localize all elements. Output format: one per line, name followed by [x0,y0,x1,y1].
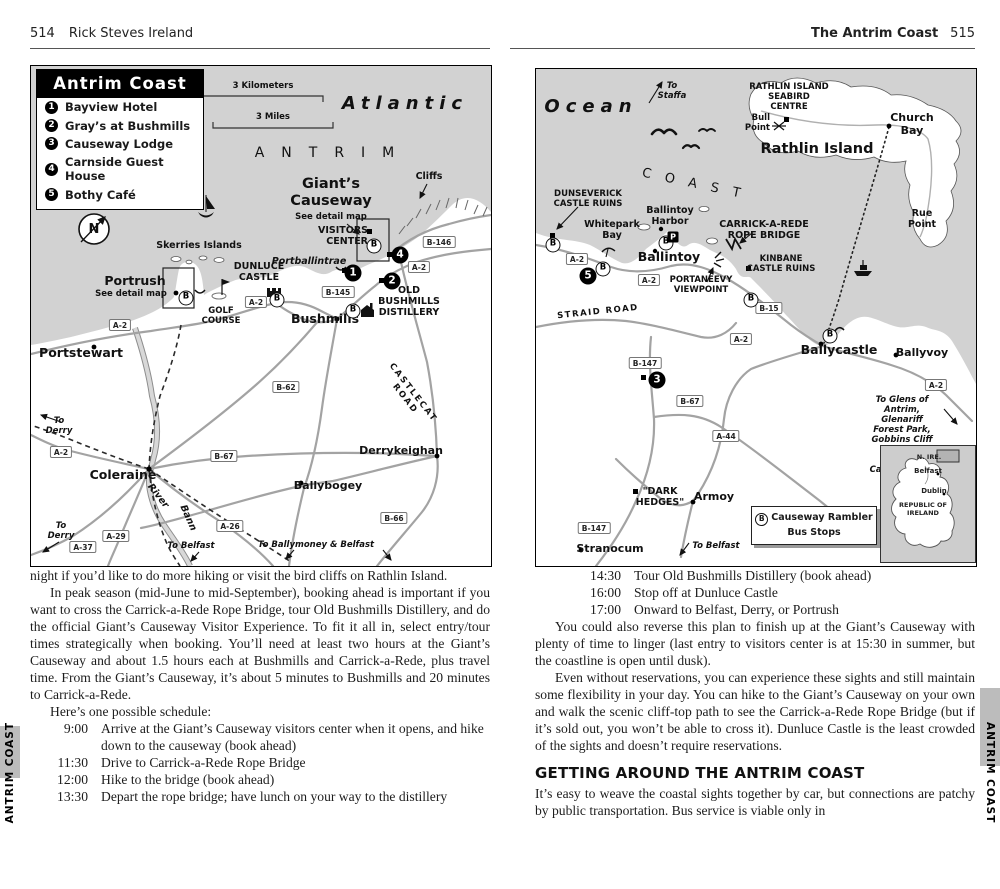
map-marker-5-bothy-cafe: 5 [580,268,597,285]
road-badge-b147: B-147 [578,522,611,534]
road-badge-b146: B-146 [423,236,456,248]
map-label-ballybogey: Ballybogey [294,480,362,493]
schedule-time: 14:30 [579,567,634,584]
legend-item: 3Causeway Lodge [37,135,203,153]
map-label-cliffs: Cliffs [416,171,443,182]
schedule-time: 9:00 [46,720,101,754]
road-badge-a2: A-2 [245,296,267,308]
map-label-ballycastle: Ballycastle [801,343,878,358]
schedule-time: 17:00 [579,601,634,618]
map-marker-3-causeway-lodge: 3 [649,372,666,389]
legend-marker-3: 3 [45,137,58,150]
road-badge-a2: A-2 [925,379,947,391]
ireland-inset-map: N. IRE. Belfast Dublin REPUBLIC OF IRELA… [880,445,976,563]
road-badge-b62: B-62 [272,381,299,393]
left-page-tab: ANTRIM COAST [0,698,20,848]
bus-stop-dunseverick: B [546,238,561,253]
right-page-number: 515 [950,26,975,41]
book-spread: ANTRIM COAST ANTRIM COAST 514Rick Steves… [0,0,1000,889]
paragraph: Here’s one possible schedule: [30,703,490,720]
legend-label: Gray’s at Bushmills [65,119,190,133]
map-label-dunluce-castle: DUNLUCE CASTLE [234,261,284,283]
schedule-activity: Drive to Carrick-a-Rede Rope Bridge [101,754,490,771]
map-label-kinbane: KINBANE CASTLE RUINS [747,254,816,274]
road-badge-a2: A-2 [566,253,588,265]
schedule-activity: Arrive at the Giant’s Causeway visitors … [101,720,490,754]
road-badge-b15: B-15 [755,302,782,314]
schedule-row: 9:00Arrive at the Giant’s Causeway visit… [46,720,490,754]
schedule-time: 12:00 [46,771,101,788]
schedule-row: 12:00Hike to the bridge (book ahead) [46,771,490,788]
parking-icon: P [668,232,679,243]
map-label-derrykeighan: Derrykeighan [359,445,443,458]
road-badge-a2: A-2 [50,446,72,458]
map-label-dark-hedges: "DARK HEDGES" [636,486,684,508]
antrim-coast-east-map: Ocean To Staffa COAST RATHLIN ISLAND SEA… [535,68,977,567]
map-label-to-derry-south: To Derry [48,521,75,541]
schedule-activity: Depart the rope bridge; have lunch on yo… [101,788,490,805]
map-label-seabird-centre: RATHLIN ISLAND SEABIRD CENTRE [749,82,828,112]
legend-item: 4Carnside Guest House [37,153,203,185]
road-badge-a37: A-37 [69,541,96,553]
schedule-activity: Hike to the bridge (book ahead) [101,771,490,788]
paragraph: You could also reverse this plan to fini… [535,618,975,669]
map-label-carrick-a-rede: CARRICK-A-REDE ROPE BRIDGE [719,219,808,241]
legend-label: Bayview Hotel [65,100,157,114]
antrim-coast-map: Antrim Coast 1Bayview Hotel 2Gray’s at B… [30,65,492,567]
left-page-body: night if you’d like to do more hiking or… [30,567,490,805]
map-label-ballyvoy: Ballyvoy [896,347,948,360]
map-label-antrim-region: ANTRIM [255,145,412,162]
map-label-ballintoy-harbor: Ballintoy Harbor [646,205,693,227]
right-page-body: 14:30Tour Old Bushmills Distillery (book… [535,567,975,819]
map-label-portrush: Portrush [104,274,165,289]
road-badge-b67: B-67 [210,450,237,462]
schedule-row: 17:00Onward to Belfast, Derry, or Portru… [579,601,975,618]
road-badge-a2: A-2 [109,319,131,331]
bus-stop-ballycastle: B [823,329,838,344]
map-label-rathlin-island: Rathlin Island [761,141,874,158]
paragraph: night if you’d like to do more hiking or… [30,567,490,584]
bus-stop-icon: B [755,513,768,526]
legend-marker-1: 1 [45,101,58,114]
inset-label-belfast: Belfast [914,467,942,475]
scale-miles-label: 3 Miles [256,112,290,122]
paragraph: Even without reservations, you can exper… [535,669,975,754]
map-label-stranocum: Stranocum [576,543,643,556]
right-page-header: The Antrim Coast515 [510,26,975,49]
bus-stop-dunluce: B [270,293,285,308]
bus-stop-portrush: B [179,291,194,306]
road-badge-a2: A-2 [408,261,430,273]
map-label-rue-point: Rue Point [908,208,936,230]
map-label-to-belfast: To Belfast [167,541,214,551]
legend-item: 5Bothy Café [37,186,203,209]
schedule-activity: Onward to Belfast, Derry, or Portrush [634,601,975,618]
map-legend: Antrim Coast 1Bayview Hotel 2Gray’s at B… [36,69,204,210]
map-label-to-belfast: To Belfast [692,541,739,551]
schedule-row: 13:30Depart the rope bridge; have lunch … [46,788,490,805]
legend-marker-4: 4 [45,163,58,176]
schedule-time: 16:00 [579,584,634,601]
map-label-armoy: Armoy [694,491,734,504]
map-label-portstewart: Portstewart [39,346,123,361]
distillery-icon [361,303,374,317]
schedule-time: 11:30 [46,754,101,771]
road-badge-b67: B-67 [676,395,703,407]
map-label-golf-course: GOLF COURSE [202,306,241,326]
map-label-ocean: Ocean [544,96,637,117]
road-badge-a29: A-29 [102,530,129,542]
map-label-see-detail-causeway: See detail map [295,212,367,222]
inset-label-republic: REPUBLIC OF IRELAND [899,502,947,517]
legend-item: 2Gray’s at Bushmills [37,116,203,134]
map-label-skerries-islands: Skerries Islands [156,240,241,251]
bus-stop-whitepark: B [596,262,611,277]
map-label-bull-point: Bull Point [745,113,770,133]
boat-icon [195,290,205,293]
left-tab-label: ANTRIM COAST [4,722,16,823]
section-heading: GETTING AROUND THE ANTRIM COAST [535,765,975,782]
chapter-title: The Antrim Coast [811,26,938,41]
map-label-to-staffa: To Staffa [658,81,687,101]
map-label-see-detail-portrush: See detail map [95,289,167,299]
bus-stop-bushmills: B [346,304,361,319]
map-marker-2-grays: 2 [384,273,401,290]
map-label-visitors-center: VISITORS CENTER [318,225,368,247]
legend-label: Carnside Guest House [65,155,203,183]
schedule-row: 11:30Drive to Carrick-a-Rede Rope Bridge [46,754,490,771]
map-marker-4-carnside: 4 [392,247,409,264]
bus-legend-line1: Causeway Rambler [771,512,872,523]
schedule-activity: Tour Old Bushmills Distillery (book ahea… [634,567,975,584]
map-label-whitepark-bay: Whitepark Bay [584,219,640,241]
map-marker-1-bayview-hotel: 1 [345,265,362,282]
map-label-church-bay: Church Bay [880,112,944,138]
schedule-time: 13:30 [46,788,101,805]
bus-stop-kinbane: B [744,293,759,308]
right-page-tab: ANTRIM COAST [980,698,1000,848]
map-label-coleraine: Coleraine [90,468,157,483]
book-title: Rick Steves Ireland [69,26,193,41]
bus-stops-legend: BCauseway Rambler Bus Stops [751,506,877,545]
paragraph: It’s easy to weave the coastal sights to… [535,785,975,819]
scale-km-label: 3 Kilometers [233,81,294,91]
map-label-dunseverick: DUNSEVERICK CASTLE RUINS [554,189,623,209]
road-badge-a2: A-2 [638,274,660,286]
map-legend-title: Antrim Coast [37,70,203,98]
inset-label-n-ire: N. IRE. [917,454,942,462]
road-badge-b147: B-147 [629,357,662,369]
left-page-number: 514 [30,26,55,41]
legend-label: Causeway Lodge [65,137,173,151]
map-label-portaneevy: PORTANEEVY VIEWPOINT [670,275,733,295]
map-label-to-ballymoney-belfast: To Ballymoney & Belfast [258,540,374,550]
legend-item: 1Bayview Hotel [37,98,203,116]
road-badge-a44: A-44 [712,430,739,442]
road-badge-b145: B-145 [322,286,355,298]
schedule-activity: Stop off at Dunluce Castle [634,584,975,601]
right-tab-label: ANTRIM COAST [984,722,996,823]
inset-label-dublin: Dublin [921,487,947,495]
compass-north-label: N [89,222,100,237]
legend-marker-2: 2 [45,119,58,132]
left-page-header: 514Rick Steves Ireland [30,26,490,49]
paragraph: In peak season (mid-June to mid-Septembe… [30,584,490,703]
road-badge-a2: A-2 [730,333,752,345]
bus-legend-line2: Bus Stops [754,526,874,540]
bus-stop-visitors-center: B [367,239,382,254]
legend-marker-5: 5 [45,188,58,201]
map-label-ballintoy: Ballintoy [638,250,700,265]
schedule-row: 16:00Stop off at Dunluce Castle [579,584,975,601]
road-badge-b66: B-66 [380,512,407,524]
map-label-to-derry-north: To Derry [46,416,73,436]
map-label-giants-causeway: Giant’s Causeway [290,176,371,210]
schedule-row: 14:30Tour Old Bushmills Distillery (book… [579,567,975,584]
map-label-old-bushmills-distillery: OLD BUSHMILLS DISTILLERY [378,285,440,319]
road-badge-a26: A-26 [216,520,243,532]
legend-label: Bothy Café [65,188,136,202]
map-label-atlantic: Atlantic [342,93,468,114]
